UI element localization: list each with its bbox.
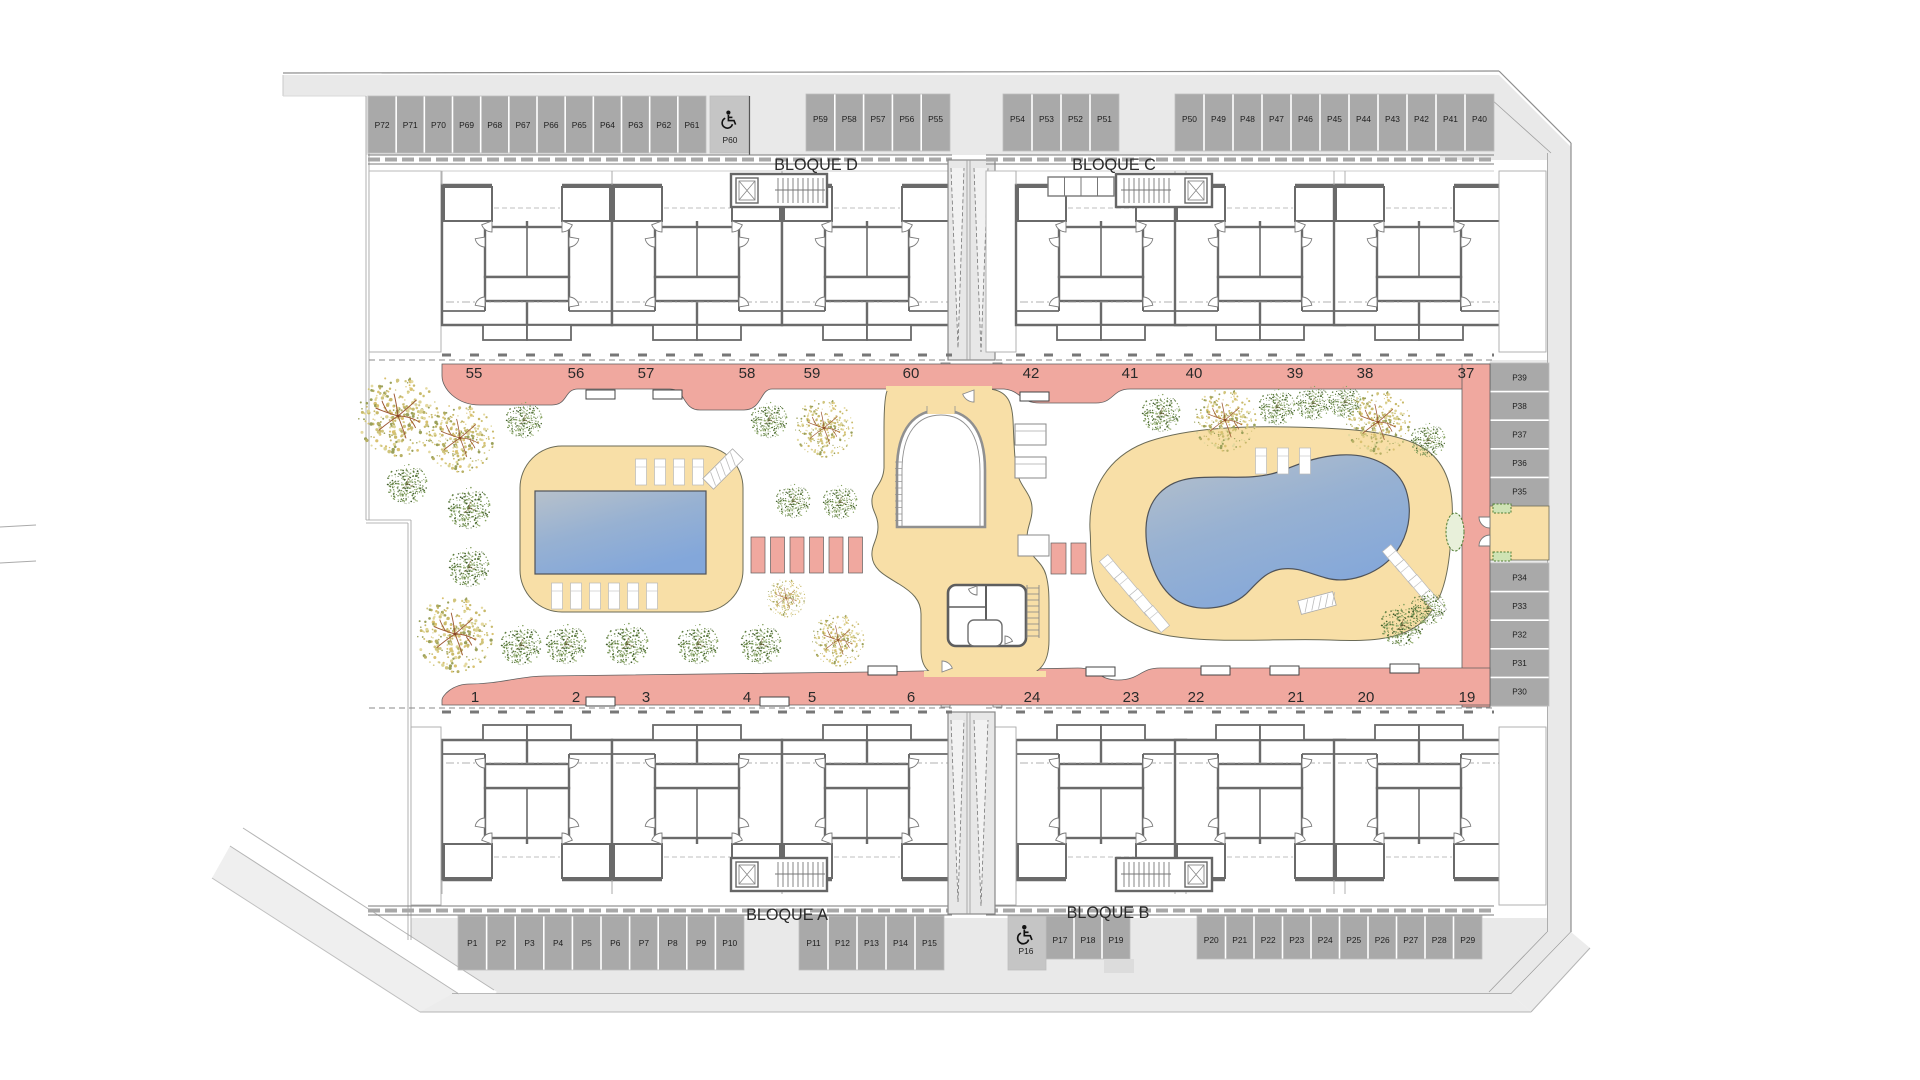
svg-text:P20: P20 [1204,935,1219,945]
svg-text:P63: P63 [628,120,643,130]
svg-text:P51: P51 [1097,114,1112,124]
svg-text:P44: P44 [1356,114,1371,124]
svg-text:P29: P29 [1460,935,1475,945]
svg-text:P7: P7 [639,938,650,948]
svg-text:P59: P59 [813,114,828,124]
svg-text:P35: P35 [1512,488,1527,497]
svg-text:BLOQUE B: BLOQUE B [1067,904,1150,922]
svg-text:P45: P45 [1327,114,1342,124]
svg-text:P71: P71 [403,120,418,130]
svg-text:P61: P61 [684,120,699,130]
svg-text:4: 4 [743,689,751,706]
svg-text:19: 19 [1459,689,1476,706]
svg-text:P12: P12 [835,938,850,948]
svg-text:P55: P55 [928,114,943,124]
svg-text:P54: P54 [1010,114,1025,124]
svg-text:P16: P16 [1019,946,1034,956]
svg-text:1: 1 [471,689,479,706]
svg-text:58: 58 [739,365,756,382]
svg-text:P10: P10 [722,938,737,948]
svg-text:21: 21 [1288,689,1305,706]
svg-text:42: 42 [1023,365,1040,382]
svg-text:P30: P30 [1512,688,1527,697]
svg-text:P42: P42 [1414,114,1429,124]
svg-text:P23: P23 [1289,935,1304,945]
svg-text:P46: P46 [1298,114,1313,124]
svg-text:P15: P15 [922,938,937,948]
svg-text:41: 41 [1122,365,1139,382]
svg-text:P70: P70 [431,120,446,130]
svg-text:P60: P60 [723,135,738,145]
svg-text:P19: P19 [1109,935,1124,945]
svg-text:P47: P47 [1269,114,1284,124]
svg-text:P25: P25 [1346,935,1361,945]
svg-text:P66: P66 [544,120,559,130]
svg-text:59: 59 [804,365,821,382]
svg-text:P14: P14 [893,938,908,948]
svg-text:P17: P17 [1053,935,1068,945]
svg-text:BLOQUE C: BLOQUE C [1072,156,1156,174]
svg-text:56: 56 [568,365,585,382]
svg-text:P24: P24 [1318,935,1333,945]
svg-text:P36: P36 [1512,459,1527,468]
svg-text:5: 5 [808,689,816,706]
svg-text:P67: P67 [515,120,530,130]
svg-text:P28: P28 [1432,935,1447,945]
svg-text:P21: P21 [1232,935,1247,945]
svg-text:P11: P11 [806,938,821,948]
svg-text:P8: P8 [667,938,678,948]
svg-text:22: 22 [1188,689,1205,706]
svg-text:P32: P32 [1512,631,1527,640]
svg-text:38: 38 [1357,365,1374,382]
svg-text:P41: P41 [1443,114,1458,124]
svg-text:55: 55 [466,365,483,382]
svg-text:2: 2 [572,689,580,706]
svg-text:37: 37 [1458,365,1475,382]
svg-text:P31: P31 [1512,659,1527,668]
svg-text:P56: P56 [899,114,914,124]
svg-text:3: 3 [642,689,650,706]
svg-text:P69: P69 [459,120,474,130]
svg-text:P27: P27 [1403,935,1418,945]
svg-text:P22: P22 [1261,935,1276,945]
svg-text:20: 20 [1358,689,1375,706]
svg-text:P40: P40 [1472,114,1487,124]
svg-text:P49: P49 [1211,114,1226,124]
svg-text:P4: P4 [553,938,564,948]
svg-text:24: 24 [1024,689,1041,706]
svg-text:P65: P65 [572,120,587,130]
svg-text:P13: P13 [864,938,879,948]
svg-text:P34: P34 [1512,573,1527,582]
svg-text:P48: P48 [1240,114,1255,124]
svg-text:BLOQUE A: BLOQUE A [746,906,828,924]
svg-text:P50: P50 [1182,114,1197,124]
svg-text:P2: P2 [496,938,507,948]
svg-text:P38: P38 [1512,402,1527,411]
svg-text:P39: P39 [1512,373,1527,382]
svg-text:P6: P6 [610,938,621,948]
svg-text:40: 40 [1186,365,1203,382]
svg-text:P53: P53 [1039,114,1054,124]
svg-text:39: 39 [1287,365,1304,382]
svg-text:P5: P5 [582,938,593,948]
svg-text:P43: P43 [1385,114,1400,124]
svg-text:6: 6 [907,689,915,706]
svg-text:P52: P52 [1068,114,1083,124]
svg-text:P3: P3 [524,938,535,948]
svg-text:P72: P72 [375,120,390,130]
svg-text:57: 57 [638,365,655,382]
svg-text:60: 60 [903,365,920,382]
svg-text:P9: P9 [696,938,707,948]
svg-text:P68: P68 [487,120,502,130]
svg-text:BLOQUE D: BLOQUE D [774,156,858,174]
svg-text:P62: P62 [656,120,671,130]
svg-text:P37: P37 [1512,431,1527,440]
svg-text:P58: P58 [842,114,857,124]
svg-text:P1: P1 [467,938,478,948]
svg-text:P18: P18 [1081,935,1096,945]
svg-text:P64: P64 [600,120,615,130]
svg-text:P33: P33 [1512,602,1527,611]
svg-text:23: 23 [1123,689,1140,706]
svg-text:P57: P57 [871,114,886,124]
svg-text:P26: P26 [1375,935,1390,945]
